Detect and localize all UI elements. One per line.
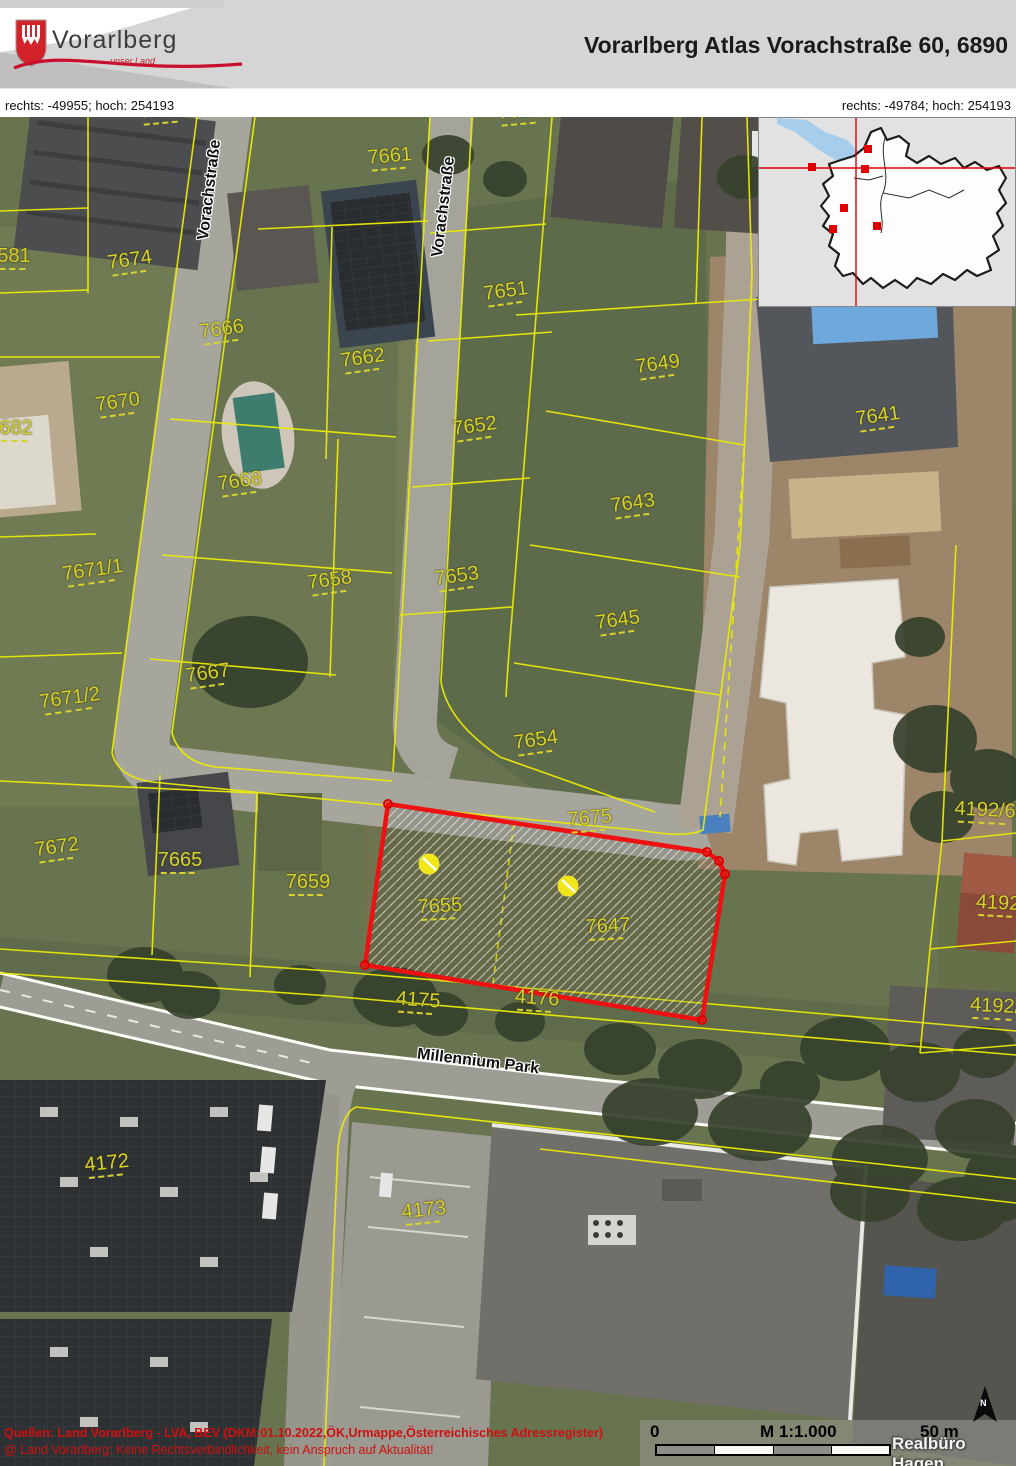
scale-ratio-label: M 1:1.000 — [760, 1422, 837, 1442]
logo-wordmark: Vorarlberg — [52, 26, 177, 55]
parcel-label-581: 581 — [0, 246, 31, 270]
vorarlberg-logo: Vorarlberg unser Land — [10, 16, 250, 86]
map-viewport[interactable]: 7673765776617674581766676627651767068276… — [0, 117, 1016, 1466]
parcel-label-4192: 4192 — [975, 892, 1016, 918]
logo-tagline: unser Land — [110, 56, 155, 66]
watermark: Realbüro Hagen — [892, 1434, 1016, 1466]
coordinate-left: rechts: -49955; hoch: 254193 — [5, 98, 174, 113]
parcel-label-7655: 7655 — [417, 895, 463, 921]
parcel-label-4175: 4175 — [395, 988, 441, 1015]
parcel-label-4173: 4173 — [401, 1198, 448, 1227]
parcel-label-7675: 7675 — [567, 806, 613, 834]
parcel-label-7659: 7659 — [286, 872, 331, 896]
source-line-2: @ Land Vorarlberg: Keine Rechtsverbindli… — [4, 1443, 434, 1457]
north-arrow-icon: N — [970, 1385, 1000, 1425]
aerial-imagery — [0, 117, 1016, 1466]
header-top-strip — [0, 0, 224, 8]
inset-graphic — [759, 118, 1015, 306]
scale-bar — [655, 1444, 891, 1456]
parcel-label-4176: 4176 — [514, 986, 560, 1013]
page-title: Vorarlberg Atlas Vorachstraße 60, 6890 — [584, 32, 1008, 59]
source-line-1: Quellen: Land Vorarlberg - LVA, BEV (DKM… — [4, 1426, 603, 1440]
header: Vorarlberg unser Land Vorarlberg Atlas V… — [0, 0, 1016, 95]
parcel-label-682: 682 — [0, 418, 33, 442]
coordinate-bar: rechts: -49955; hoch: 254193 rechts: -49… — [0, 95, 1016, 117]
parcel-label-7647: 7647 — [585, 915, 631, 941]
overview-inset-map[interactable] — [758, 117, 1016, 307]
parcel-label-7665: 7665 — [158, 850, 203, 874]
parcel-label-4172: 4172 — [84, 1151, 131, 1180]
parcel-label-4192/: 4192/ — [969, 995, 1016, 1022]
parcel-label-7661: 7661 — [367, 144, 413, 172]
parcel-label-4192/6: 4192/6 — [954, 798, 1016, 825]
coordinate-right: rechts: -49784; hoch: 254193 — [842, 98, 1011, 113]
scale-zero-label: 0 — [650, 1422, 659, 1442]
north-letter: N — [980, 1398, 987, 1408]
